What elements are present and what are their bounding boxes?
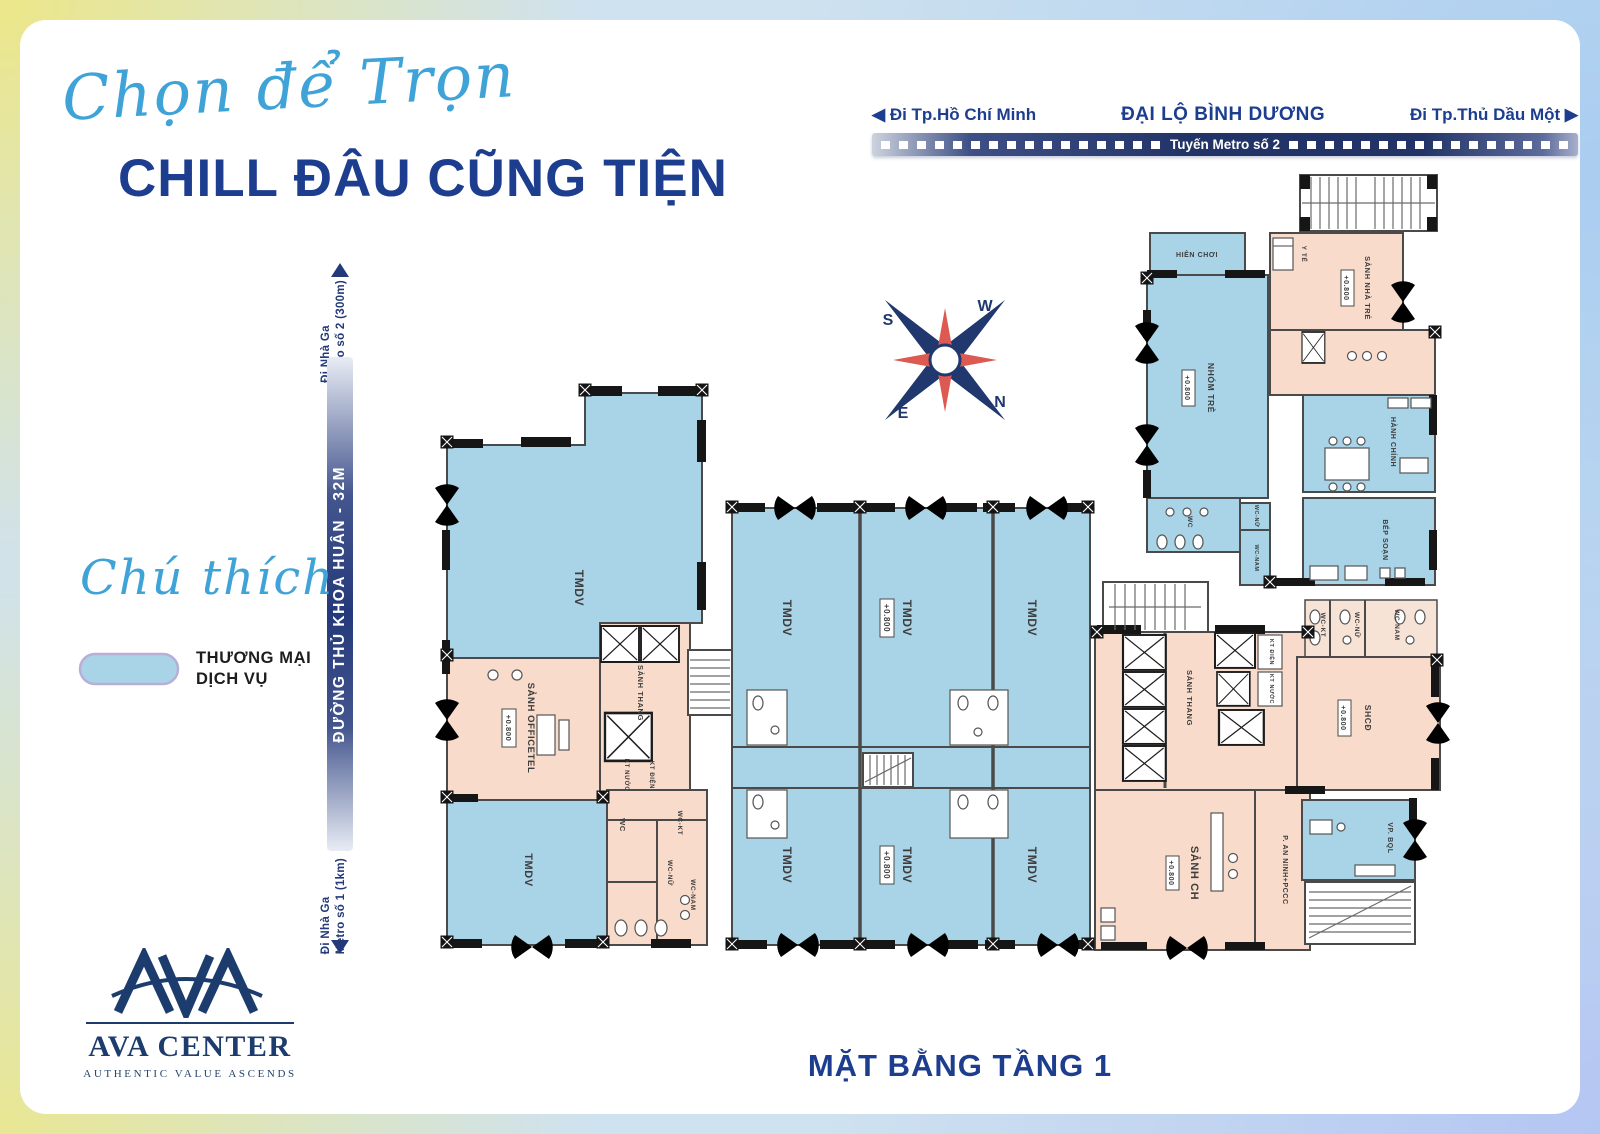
label-wc-kt-right: WC-KT <box>1319 613 1326 638</box>
arrow-up-icon <box>331 263 349 277</box>
metro-line-label: Tuyến Metro số 2 <box>1170 137 1280 152</box>
lift-tower-6 <box>1217 672 1250 706</box>
lift-tower-7 <box>1219 710 1264 745</box>
label-tmdv-t2: TMDV <box>900 600 914 636</box>
label-elev-b2: +0.800 <box>882 851 891 879</box>
label-elev-shcd: +0.800 <box>1339 705 1346 730</box>
label-wc-nu-nursery: WC-NỮ <box>1253 505 1260 528</box>
label-sanh-officetel: SẢNH OFFICETEL <box>525 683 537 774</box>
metro-line-bar: Tuyến Metro số 2 <box>872 133 1578 156</box>
compass-e: E <box>898 405 909 422</box>
label-wc-kt-left: WC-KT <box>676 811 683 836</box>
label-kt-nuoc-tower: KT NƯỚC <box>1268 674 1276 704</box>
label-kt-dien-tower: KT ĐIỆN <box>1268 639 1276 665</box>
lift-tower-4 <box>1123 746 1166 781</box>
room-sanh-officetel-shape <box>447 658 600 800</box>
label-tmdv-b3: TMDV <box>1025 847 1039 883</box>
label-elev-nhom-tre: +0.800 <box>1183 375 1190 400</box>
lift-tower-5 <box>1215 633 1255 668</box>
legend-swatch <box>78 652 180 686</box>
arrow-down-icon <box>331 940 349 954</box>
label-sanh-ch: SẢNH CH <box>1188 846 1201 900</box>
label-tmdv-b1: TMDV <box>780 847 794 883</box>
label-tmdv-t1: TMDV <box>780 600 794 636</box>
label-wc-left: WC <box>618 818 627 832</box>
label-sanh-nha-tre: SẢNH NHÀ TRẺ <box>1363 256 1372 320</box>
label-sanh-thang-tower: SẢNH THANG <box>1185 670 1194 726</box>
poster: Chọn để Trọn CHILL ĐÂU CŨNG TIỆN ◀ Đi Tp… <box>0 0 1600 1134</box>
compass-rose <box>825 240 1065 480</box>
label-wc-nam-left: WC-NAM <box>689 879 696 910</box>
lift-nursery <box>1302 332 1325 363</box>
legend-item-label: THƯƠNG MẠI DỊCH VỤ <box>196 648 311 690</box>
metro-dashes-right <box>1289 141 1569 149</box>
legend-title: Chú thích <box>80 550 335 606</box>
label-elev-t2: +0.800 <box>882 604 891 632</box>
label-elev-officetel: +0.800 <box>504 715 513 742</box>
label-tmdv-left: TMDV <box>572 570 586 606</box>
legend-item-commercial: THƯƠNG MẠI DỊCH VỤ <box>78 648 311 690</box>
lift-left-2 <box>641 626 679 662</box>
poster-inner: Chọn để Trọn CHILL ĐÂU CŨNG TIỆN ◀ Đi Tp… <box>20 20 1580 1114</box>
brand-name: AVA CENTER <box>78 1030 302 1064</box>
label-tmdv-t3: TMDV <box>1025 600 1039 636</box>
compass-w: W <box>977 298 993 315</box>
road-top: ◀ Đi Tp.Hồ Chí Minh ĐẠI LỘ BÌNH DƯƠNG Đi… <box>872 104 1578 156</box>
label-hanh-chinh: HÀNH CHÍNH <box>1389 417 1398 467</box>
script-title: Chọn để Trọn <box>60 38 517 135</box>
label-wc-nu-right: WC-NỮ <box>1353 612 1362 638</box>
floorplan-title: MẶT BẰNG TẦNG 1 <box>760 1048 1160 1084</box>
label-kt-nuoc-left: KT NƯỚC <box>623 759 631 792</box>
compass-s: S <box>883 312 894 329</box>
road-top-dest-right: Đi Tp.Thủ Dầu Một ▶ <box>1410 105 1578 125</box>
label-vp-bql: VP. BQL <box>1386 822 1393 853</box>
rooms <box>447 175 1440 950</box>
logo-rule <box>86 1022 294 1024</box>
lift-tower-3 <box>1123 709 1166 744</box>
label-p-an-ninh: P. AN NINH+PCCC <box>1281 835 1288 904</box>
arrow-left-icon: ◀ <box>872 105 885 124</box>
label-elev-sanh-ch: +0.800 <box>1167 860 1174 885</box>
lift-left-1 <box>601 626 639 662</box>
brand-logo: AVA CENTER AUTHENTIC VALUE ASCENDS <box>78 948 302 1080</box>
room-tmdv-left-shape <box>447 393 702 658</box>
label-hien-choi: HIÊN CHƠI <box>1176 250 1218 259</box>
metro-dashes-left <box>881 141 1161 149</box>
compass-n: N <box>994 394 1006 411</box>
stair-bottom-right-shape <box>1305 882 1415 944</box>
label-shcd: SHCĐ <box>1363 705 1373 732</box>
label-tmdv-bottomleft: TMDV <box>522 853 534 887</box>
arrow-right-icon: ▶ <box>1565 105 1578 124</box>
label-tmdv-b2: TMDV <box>900 847 914 883</box>
road-top-dest-left: ◀ Đi Tp.Hồ Chí Minh <box>872 105 1036 125</box>
label-wc-nam-right: WC-NAM <box>1393 609 1400 640</box>
label-kt-dien-left: KT ĐIỆN <box>648 761 656 789</box>
lift-tower-1 <box>1123 635 1166 670</box>
floor-plan: TMDV TMDV TMDV TMDV +0.800 TMDV TMDV TMD… <box>425 170 1460 965</box>
brand-tagline: AUTHENTIC VALUE ASCENDS <box>78 1068 302 1080</box>
ava-logo-icon <box>110 948 270 1018</box>
label-sanh-thang-left: SẢNH THANG <box>636 665 645 721</box>
road-top-name: ĐẠI LỘ BÌNH DƯƠNG <box>1121 104 1325 126</box>
label-nhom-tre: NHÓM TRẺ <box>1206 363 1217 413</box>
label-wc-nam-nursery: WC-NAM <box>1253 544 1259 571</box>
compass-hub <box>930 345 960 375</box>
label-elev-nha-tre: +0.800 <box>1342 275 1349 300</box>
label-wc-nursery: WC <box>1186 516 1193 528</box>
lift-tower-2 <box>1123 672 1166 707</box>
label-wc-nu-left: WC-NỮ <box>666 860 675 886</box>
